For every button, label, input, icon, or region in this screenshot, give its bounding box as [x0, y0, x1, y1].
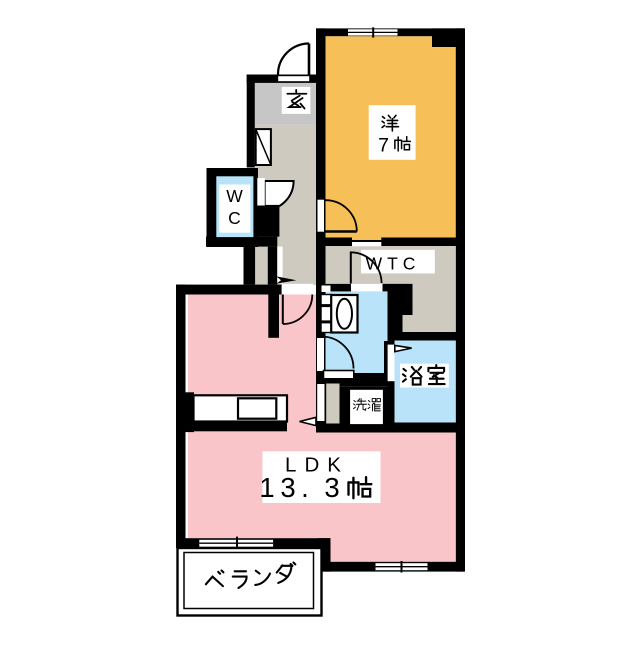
svg-text:1: 1 [259, 472, 274, 503]
svg-text:3: 3 [324, 472, 339, 503]
svg-text:3: 3 [280, 472, 295, 503]
svg-text:7: 7 [378, 135, 389, 157]
svg-text:.: . [301, 472, 309, 503]
svg-text:C: C [228, 208, 241, 228]
svg-text:W: W [226, 186, 243, 206]
